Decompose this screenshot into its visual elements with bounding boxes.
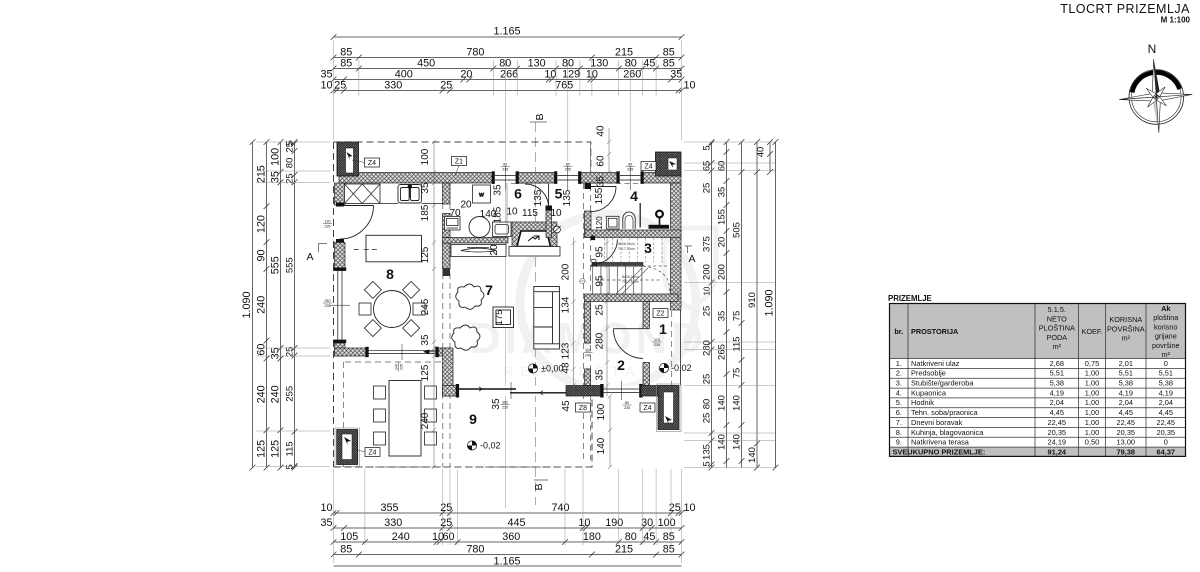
svg-text:60: 60 [442, 531, 454, 543]
svg-text:SVEUKUPNO PRIZEMLJE:: SVEUKUPNO PRIZEMLJE: [893, 447, 986, 456]
svg-text:Z4: Z4 [644, 164, 652, 171]
svg-text:2,04: 2,04 [1159, 398, 1173, 407]
svg-text:235: 235 [325, 304, 331, 308]
svg-text:M 1:100: M 1:100 [1161, 16, 1191, 25]
svg-text:235: 235 [502, 168, 508, 172]
svg-text:235: 235 [654, 343, 660, 347]
svg-text:5: 5 [284, 464, 295, 469]
svg-text:Z4: Z4 [368, 450, 376, 457]
svg-text:35: 35 [595, 369, 606, 381]
svg-text:7x17,5 cm: 7x17,5 cm [622, 280, 639, 284]
svg-text:PROSTORIJA: PROSTORIJA [911, 327, 959, 336]
svg-text:8: 8 [386, 266, 394, 282]
svg-text:200: 200 [701, 264, 712, 280]
svg-text:5.1.5.: 5.1.5. [1048, 305, 1066, 314]
svg-text:20,35: 20,35 [1117, 428, 1136, 437]
svg-text:35: 35 [493, 184, 504, 196]
svg-text:1.090: 1.090 [764, 289, 776, 316]
svg-text:80: 80 [284, 158, 295, 169]
svg-text:PRIZEMLJE: PRIZEMLJE [888, 294, 932, 303]
svg-text:25: 25 [334, 80, 346, 92]
svg-text:135: 135 [562, 189, 573, 206]
svg-text:35: 35 [269, 347, 281, 359]
svg-text:PLOŠTINA: PLOŠTINA [1039, 324, 1075, 333]
svg-text:105: 105 [340, 531, 358, 543]
svg-text:7: 7 [485, 282, 493, 298]
svg-text:B: B [533, 483, 545, 490]
svg-text:Kuhinja, blagovaonica: Kuhinja, blagovaonica [911, 428, 984, 437]
svg-text:1,00: 1,00 [1085, 398, 1099, 407]
svg-text:780: 780 [466, 544, 484, 556]
svg-text:375: 375 [701, 236, 712, 252]
svg-text:240: 240 [420, 412, 431, 429]
svg-text:330: 330 [384, 517, 402, 529]
svg-text:95: 95 [595, 246, 606, 258]
svg-text:m²: m² [1053, 342, 1062, 351]
svg-text:N: N [1148, 42, 1157, 56]
svg-text:90: 90 [255, 249, 267, 261]
svg-text:2,04: 2,04 [1050, 398, 1064, 407]
svg-text:20: 20 [460, 69, 472, 81]
svg-text:5: 5 [701, 461, 712, 466]
svg-text:240: 240 [585, 354, 591, 358]
svg-text:5: 5 [701, 145, 712, 150]
svg-text:120: 120 [325, 219, 331, 223]
svg-text:140: 140 [747, 447, 758, 463]
svg-text:Hodnik: Hodnik [911, 398, 934, 407]
svg-text:100: 100 [596, 403, 607, 420]
svg-text:Natkrivena terasa: Natkrivena terasa [911, 438, 970, 447]
svg-text:235: 235 [627, 168, 633, 172]
svg-text:25: 25 [284, 142, 295, 153]
svg-text:25: 25 [701, 374, 712, 385]
svg-text:85: 85 [663, 544, 675, 556]
svg-text:134: 134 [561, 296, 572, 313]
svg-text:5.: 5. [896, 398, 902, 407]
svg-text:POVRŠINA: POVRŠINA [1107, 324, 1145, 333]
svg-text:6.: 6. [896, 408, 902, 417]
svg-text:25: 25 [440, 517, 452, 529]
svg-text:260: 260 [623, 69, 641, 81]
svg-text:4: 4 [630, 188, 638, 204]
svg-text:NETO: NETO [1047, 314, 1067, 323]
svg-text:1,00: 1,00 [1085, 428, 1099, 437]
svg-text:1.090: 1.090 [241, 291, 253, 318]
svg-text:1: 1 [659, 321, 667, 337]
svg-text:75: 75 [731, 368, 742, 379]
svg-text:25: 25 [440, 502, 452, 514]
svg-text:95: 95 [595, 275, 606, 287]
svg-text:10: 10 [683, 502, 695, 514]
svg-text:10: 10 [703, 286, 712, 295]
svg-text:-0,02: -0,02 [480, 441, 501, 451]
svg-text:1,00: 1,00 [1085, 408, 1099, 417]
svg-text:80: 80 [701, 399, 712, 410]
svg-text:4,19: 4,19 [1119, 388, 1133, 397]
svg-text:2,04: 2,04 [1119, 398, 1133, 407]
svg-text:4,45: 4,45 [1119, 408, 1133, 417]
svg-text:A: A [688, 253, 695, 265]
svg-text:9: 9 [469, 411, 477, 427]
svg-text:25: 25 [595, 304, 606, 316]
svg-text:8.: 8. [896, 428, 902, 437]
svg-text:123: 123 [561, 342, 572, 359]
svg-text:266: 266 [500, 69, 518, 81]
svg-text:75: 75 [731, 311, 742, 322]
svg-text:10: 10 [578, 517, 590, 529]
svg-text:64,37: 64,37 [1157, 447, 1176, 456]
svg-text:1,00: 1,00 [1085, 379, 1099, 388]
svg-text:4,45: 4,45 [1050, 408, 1064, 417]
svg-text:B: B [534, 113, 546, 120]
svg-text:25: 25 [669, 502, 681, 514]
svg-text:100: 100 [658, 517, 676, 529]
svg-text:185: 185 [420, 204, 431, 221]
svg-text:5,38: 5,38 [1050, 379, 1064, 388]
svg-text:235: 235 [400, 364, 404, 370]
svg-text:35: 35 [716, 187, 727, 198]
svg-text:Z4: Z4 [643, 405, 651, 412]
svg-text:80: 80 [625, 401, 629, 405]
svg-text:KORISNA: KORISNA [1109, 315, 1142, 324]
svg-text:240: 240 [269, 385, 281, 403]
svg-text:265: 265 [716, 344, 727, 360]
svg-text:10: 10 [683, 80, 695, 92]
svg-text:35: 35 [491, 398, 502, 410]
svg-text:140: 140 [716, 395, 727, 411]
svg-text:5,51: 5,51 [1159, 369, 1173, 378]
svg-text:5,51: 5,51 [1050, 369, 1064, 378]
svg-text:60: 60 [255, 344, 267, 356]
svg-text:2: 2 [617, 357, 625, 373]
svg-text:60: 60 [716, 161, 727, 172]
svg-text:grijane: grijane [1155, 332, 1177, 341]
svg-text:45: 45 [643, 58, 655, 70]
svg-text:TLOCRT PRIZEMLJA: TLOCRT PRIZEMLJA [1060, 2, 1190, 16]
svg-text:PODA: PODA [1046, 333, 1067, 342]
svg-text:40: 40 [596, 125, 607, 137]
svg-text:4.: 4. [896, 388, 902, 397]
svg-text:površine: površine [1152, 341, 1180, 350]
svg-text:85: 85 [340, 58, 352, 70]
svg-text:20: 20 [489, 244, 500, 256]
svg-text:140: 140 [596, 437, 607, 454]
svg-text:2.: 2. [896, 369, 902, 378]
svg-text:1,00: 1,00 [1085, 388, 1099, 397]
svg-text:Stubište/garderoba: Stubište/garderoba [911, 379, 974, 388]
svg-text:2,01: 2,01 [1119, 359, 1133, 368]
svg-text:4,19: 4,19 [1159, 388, 1173, 397]
svg-text:br.: br. [894, 327, 903, 336]
svg-text:3.: 3. [896, 379, 902, 388]
svg-text:22,45: 22,45 [1117, 418, 1136, 427]
svg-text:910: 910 [747, 292, 758, 308]
svg-text:125: 125 [255, 440, 267, 458]
svg-text:Dnevni boravak: Dnevni boravak [911, 418, 963, 427]
svg-text:35: 35 [420, 334, 431, 346]
svg-text:3: 3 [644, 240, 652, 256]
svg-text:0: 0 [1164, 359, 1168, 368]
svg-text:6: 6 [514, 186, 522, 202]
svg-text:555: 555 [269, 256, 281, 274]
svg-text:155: 155 [716, 209, 727, 225]
svg-text:505: 505 [731, 222, 742, 238]
svg-text:5,51: 5,51 [1119, 369, 1133, 378]
svg-text:125: 125 [420, 246, 431, 263]
svg-text:135: 135 [533, 189, 544, 206]
svg-text:KOEF.: KOEF. [1081, 327, 1102, 336]
svg-text:1.: 1. [896, 359, 902, 368]
svg-text:Natkriveni ulaz: Natkriveni ulaz [911, 359, 960, 368]
svg-text:20,35: 20,35 [1157, 428, 1176, 437]
svg-text:35: 35 [420, 182, 431, 194]
svg-text:280: 280 [595, 332, 606, 349]
svg-text:24,19: 24,19 [1048, 438, 1067, 447]
svg-text:200: 200 [561, 263, 572, 280]
svg-text:korisno: korisno [1154, 322, 1178, 331]
svg-text:125: 125 [420, 364, 431, 381]
svg-text:45: 45 [643, 531, 655, 543]
svg-text:48: 48 [561, 362, 572, 374]
svg-text:360: 360 [502, 531, 520, 543]
svg-text:Tehn. soba/praonica: Tehn. soba/praonica [911, 408, 978, 417]
svg-text:Z4: Z4 [368, 160, 376, 167]
svg-text:10: 10 [320, 80, 332, 92]
svg-text:0,75: 0,75 [1085, 359, 1099, 368]
svg-text:22,45: 22,45 [1048, 418, 1067, 427]
svg-text:140: 140 [731, 434, 742, 450]
svg-text:8x28,0 cm: 8x28,0 cm [622, 275, 639, 279]
svg-text:2,68: 2,68 [1050, 359, 1064, 368]
svg-text:175: 175 [494, 310, 505, 326]
svg-text:Z8: Z8 [579, 405, 587, 412]
svg-text:7x17,5 cm: 7x17,5 cm [618, 247, 635, 251]
svg-text:240: 240 [392, 531, 410, 543]
svg-text:60: 60 [596, 155, 607, 167]
svg-text:235: 235 [325, 225, 331, 229]
svg-text:20: 20 [716, 237, 727, 248]
svg-text:120: 120 [595, 216, 604, 230]
svg-text:w: w [478, 192, 484, 199]
svg-text:10: 10 [506, 207, 518, 218]
svg-text:80: 80 [625, 531, 637, 543]
svg-text:190: 190 [605, 517, 623, 529]
svg-text:40: 40 [756, 147, 767, 158]
svg-text:765: 765 [555, 80, 573, 92]
svg-text:Z1: Z1 [455, 159, 463, 166]
svg-text:35: 35 [670, 69, 682, 81]
svg-text:1,00: 1,00 [1085, 418, 1099, 427]
svg-text:4,45: 4,45 [1159, 408, 1173, 417]
svg-text:Kupaonica: Kupaonica [911, 388, 947, 397]
svg-text:5,38: 5,38 [1159, 379, 1173, 388]
svg-text:10: 10 [590, 258, 599, 267]
svg-text:140: 140 [480, 209, 497, 220]
svg-text:80: 80 [503, 162, 507, 166]
svg-text:240: 240 [325, 299, 331, 303]
svg-text:1,00: 1,00 [1085, 369, 1099, 378]
svg-text:240: 240 [394, 364, 398, 370]
svg-text:155: 155 [594, 187, 605, 204]
svg-text:330: 330 [384, 80, 402, 92]
svg-text:135: 135 [701, 444, 712, 460]
svg-text:9.: 9. [896, 438, 902, 447]
svg-text:0: 0 [1164, 438, 1168, 447]
svg-text:280: 280 [701, 340, 712, 356]
svg-text:70: 70 [449, 208, 461, 219]
svg-text:A: A [306, 251, 313, 263]
svg-text:10: 10 [320, 502, 332, 514]
svg-text:20,35: 20,35 [1048, 428, 1067, 437]
svg-text:m²: m² [1122, 334, 1131, 343]
svg-text:235: 235 [502, 406, 508, 410]
svg-text:355: 355 [380, 502, 398, 514]
svg-text:35: 35 [596, 176, 607, 188]
svg-text:215: 215 [255, 165, 267, 183]
svg-text:235: 235 [624, 406, 630, 410]
svg-text:125: 125 [269, 440, 281, 458]
svg-text:215: 215 [615, 544, 633, 556]
svg-text:79,38: 79,38 [1117, 447, 1136, 456]
svg-text:Z2: Z2 [656, 311, 664, 318]
svg-text:115: 115 [654, 338, 660, 342]
svg-text:45: 45 [561, 400, 572, 412]
svg-text:20: 20 [460, 200, 472, 211]
svg-text:ploština: ploština [1153, 313, 1179, 322]
svg-text:1.165: 1.165 [493, 26, 520, 38]
svg-text:4,19: 4,19 [1050, 388, 1064, 397]
svg-text:115: 115 [522, 208, 538, 219]
svg-text:85: 85 [663, 531, 675, 543]
svg-text:80: 80 [628, 162, 632, 166]
svg-text:Ak: Ak [1161, 304, 1171, 313]
svg-text:100: 100 [269, 148, 281, 166]
svg-text:110: 110 [585, 348, 591, 352]
svg-text:65: 65 [701, 161, 712, 172]
svg-text:780: 780 [466, 47, 484, 59]
svg-text:25: 25 [701, 306, 712, 317]
svg-text:5,38: 5,38 [1119, 379, 1133, 388]
svg-text:235: 235 [565, 168, 571, 172]
svg-text:22,45: 22,45 [1157, 418, 1176, 427]
svg-text:360: 360 [502, 400, 508, 404]
svg-text:255: 255 [284, 386, 295, 402]
svg-text:140: 140 [731, 395, 742, 411]
svg-text:0,50: 0,50 [1085, 438, 1099, 447]
svg-text:555: 555 [284, 257, 295, 273]
svg-text:91,24: 91,24 [1048, 447, 1067, 456]
svg-text:7.: 7. [896, 418, 902, 427]
svg-text:240: 240 [255, 296, 267, 314]
svg-text:10: 10 [550, 208, 562, 219]
svg-text:35: 35 [320, 517, 332, 529]
svg-text:25: 25 [440, 80, 452, 92]
svg-text:Predsoblje: Predsoblje [911, 369, 946, 378]
svg-text:445: 445 [507, 517, 525, 529]
svg-text:450: 450 [417, 58, 435, 70]
svg-text:740: 740 [551, 502, 569, 514]
svg-text:8x28,0 cm: 8x28,0 cm [618, 242, 635, 246]
svg-text:80: 80 [566, 162, 570, 166]
svg-text:25: 25 [701, 413, 712, 424]
svg-text:35: 35 [269, 171, 281, 183]
svg-text:240: 240 [255, 385, 267, 403]
svg-text:100: 100 [420, 148, 431, 165]
svg-text:140: 140 [716, 434, 727, 450]
svg-text:120: 120 [255, 215, 267, 233]
svg-text:13,00: 13,00 [1117, 438, 1136, 447]
svg-text:85: 85 [340, 544, 352, 556]
svg-text:115: 115 [284, 441, 295, 456]
svg-text:1.165: 1.165 [493, 556, 520, 568]
svg-text:200: 200 [716, 264, 727, 280]
svg-text:25: 25 [701, 183, 712, 194]
svg-text:-0,02: -0,02 [671, 363, 692, 373]
svg-text:35: 35 [716, 311, 727, 322]
svg-text:180: 180 [583, 531, 601, 543]
svg-text:130: 130 [528, 58, 546, 70]
svg-text:245: 245 [420, 298, 431, 315]
